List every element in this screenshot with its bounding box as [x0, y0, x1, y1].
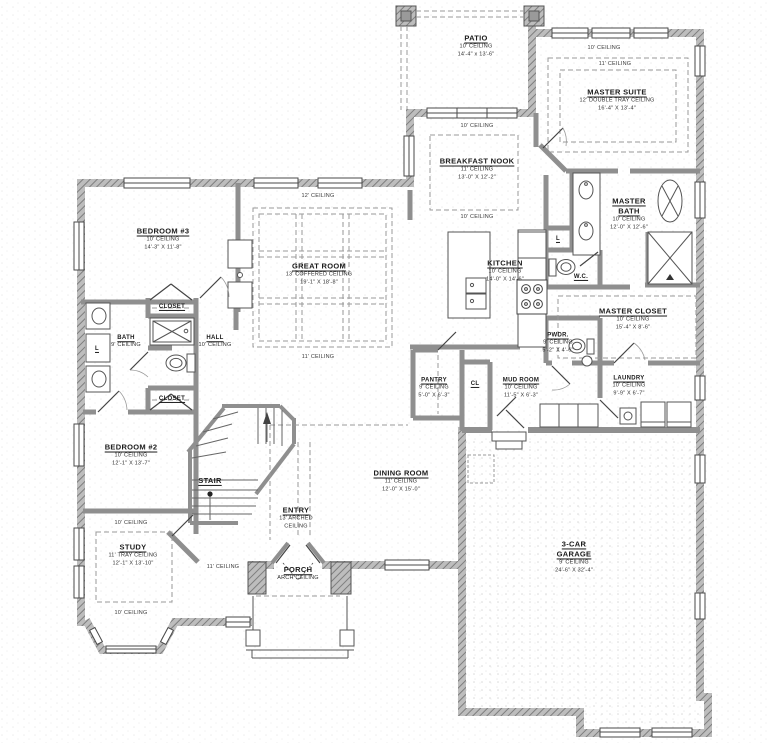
room-label-laundry: LAUNDRY 10' CEILING 9'-9" X 6'-7"	[613, 375, 646, 398]
room-label-powder: PWDR. 9' CEILING 5'-2" X 4'-6"	[542, 332, 573, 355]
ceiling-note: 10' CEILING	[588, 45, 621, 51]
room-name: BEDROOM #2	[105, 443, 158, 453]
room-name: MASTER BATH	[609, 196, 649, 216]
range-icon	[517, 280, 547, 314]
ceiling-note: 12' CEILING	[302, 193, 335, 199]
room-label-bedroom-2: BEDROOM #2 10' CEILING 12'-1" X 13'-7"	[105, 443, 158, 468]
room-name: HALL	[199, 334, 232, 342]
room-label-mud-room: MUD ROOM 10' CEILING 11'-5" X 6'-3"	[503, 377, 539, 400]
room-label-kitchen: KITCHEN 10' CEILING 14'-0" X 14'-6"	[486, 259, 524, 284]
room-label-bedroom-3: BEDROOM #3 10' CEILING 14'-3" X 11'-8"	[137, 227, 190, 252]
wc-toilet-icon	[549, 259, 575, 276]
garage-floor-texture	[466, 435, 704, 729]
room-name: PORCH	[277, 565, 319, 575]
room-name: MUD ROOM	[503, 377, 539, 385]
room-name: W.C.	[574, 273, 588, 281]
ceiling-note: 11' CEILING	[302, 354, 335, 360]
room-label-bath: BATH 9' CEILING	[111, 334, 141, 350]
bath-toilet-icon	[166, 354, 195, 372]
mud-bench	[540, 404, 598, 427]
room-name: STUDY	[108, 543, 157, 553]
room-name: MASTER CLOSET	[599, 307, 667, 317]
room-name: L	[556, 235, 560, 243]
bathtub-icon	[150, 318, 194, 345]
room-name: PATIO	[458, 34, 495, 44]
room-name: PANTRY	[418, 377, 449, 385]
room-name: CLOSET	[159, 395, 185, 403]
room-name: GREAT ROOM	[286, 262, 352, 272]
ceiling-note: 11' CEILING	[599, 61, 632, 67]
room-name: BEDROOM #3	[137, 227, 190, 237]
room-name: ENTRY	[276, 506, 316, 516]
room-label-master-bath: MASTER BATH 10' CEILING 12'-0" X 12'-6"	[609, 196, 649, 231]
room-label-pantry: PANTRY 9' CEILING 5'-0" X 6'-3"	[418, 377, 449, 400]
room-label-closet-lower: CLOSET	[159, 395, 185, 403]
master-tub-icon	[658, 180, 682, 222]
room-label-great-room: GREAT ROOM 13' COFFERED CEILING 19'-1" X…	[286, 262, 352, 287]
room-name: CLOSET	[159, 303, 185, 311]
ceiling-note: 10' CEILING	[115, 520, 148, 526]
shower-icon	[648, 232, 692, 284]
room-name: PWDR.	[542, 332, 573, 340]
room-label-linen-bath: L	[95, 345, 99, 353]
ceiling-note: 10' CEILING	[115, 610, 148, 616]
room-label-porch: PORCH ARCH CEILING	[277, 565, 319, 583]
room-label-patio: PATIO 10' CEILING 14'-4" x 13'-6"	[458, 34, 495, 59]
room-label-dining-room: DINING ROOM 11' CEILING 12'-0" X 15'-0"	[374, 469, 429, 494]
room-name: 3-CAR GARAGE	[552, 539, 596, 559]
room-label-garage: 3-CAR GARAGE 9' CEILING 24'-6" X 32'-4"	[552, 539, 596, 574]
room-label-stair: STAIR	[198, 476, 221, 486]
room-label-master-closet: MASTER CLOSET 10' CEILING 15'-4" X 8'-6"	[599, 307, 667, 332]
room-label-wc: W.C.	[574, 273, 588, 281]
room-name: KITCHEN	[486, 259, 524, 269]
garage-entry-steps	[492, 432, 526, 449]
room-name: LAUNDRY	[613, 375, 646, 383]
room-name: BATH	[111, 334, 141, 342]
ceiling-note: 10' CEILING	[461, 214, 494, 220]
room-label-master-suite: MASTER SUITE 12' DOUBLE TRAY CEILING 16'…	[579, 88, 654, 113]
room-name: CL	[471, 380, 480, 388]
room-name: DINING ROOM	[374, 469, 429, 479]
ceiling-note: 11' CEILING	[207, 564, 240, 570]
room-name: BREAKFAST NOOK	[440, 157, 515, 167]
room-name: MASTER SUITE	[579, 88, 654, 98]
floor-plan: PATIO 10' CEILING 14'-4" x 13'-6" MASTER…	[0, 0, 768, 743]
room-label-study: STUDY 11' TRAY CEILING 12'-1" X 13'-10"	[108, 543, 157, 568]
room-label-linen-master: L	[556, 235, 560, 243]
room-label-hall: HALL 10' CEILING	[199, 334, 232, 350]
ceiling-note: 10' CEILING	[461, 123, 494, 129]
room-label-breakfast-nook: BREAKFAST NOOK 11' CEILING 13'-0" X 12'-…	[440, 157, 515, 182]
room-name: L	[95, 345, 99, 353]
room-name: STAIR	[198, 476, 221, 486]
room-label-closet-cl: CL	[471, 380, 480, 388]
room-label-entry: ENTRY 13' ARCHED CEILING	[276, 506, 316, 531]
room-label-closet-upper: CLOSET	[159, 303, 185, 311]
master-vanity-sinks	[573, 173, 600, 255]
